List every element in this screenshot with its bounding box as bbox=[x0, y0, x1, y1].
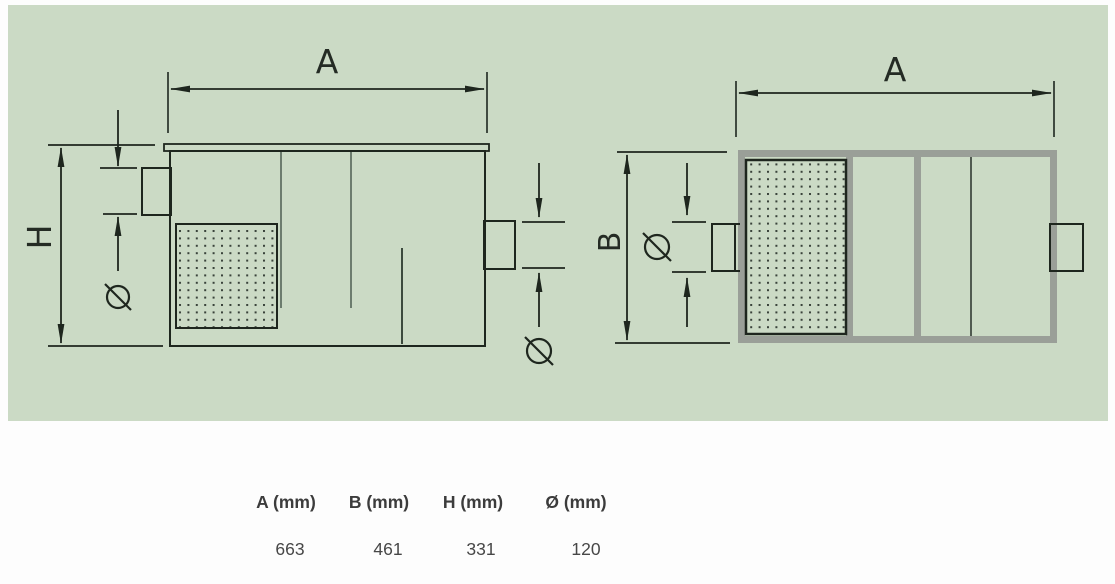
technical-drawing: A H bbox=[8, 5, 1108, 421]
diagram-panel: A H bbox=[8, 5, 1108, 421]
diameter-symbol bbox=[643, 233, 671, 261]
dim-label-h: H bbox=[20, 225, 59, 250]
inlet-port bbox=[142, 168, 171, 215]
table-header-h: H (mm) bbox=[418, 491, 528, 513]
top-view-dim-a: A bbox=[736, 50, 1054, 137]
top-view: A B bbox=[593, 50, 1083, 343]
divider-gray bbox=[914, 157, 921, 336]
top-view-dim-b: B bbox=[593, 152, 730, 343]
perforated-basket bbox=[746, 160, 846, 334]
outlet-port bbox=[484, 221, 515, 269]
dim-label-a: A bbox=[316, 42, 339, 81]
side-view-outlet-diameter-dim bbox=[522, 163, 565, 365]
side-view: A H bbox=[20, 42, 565, 365]
table-header-diameter: Ø (mm) bbox=[521, 491, 631, 513]
diameter-symbol bbox=[105, 284, 131, 310]
diameter-symbol bbox=[525, 337, 553, 365]
tank-lid bbox=[164, 144, 489, 151]
table-value-diameter: 120 bbox=[531, 538, 641, 560]
table-value-a: 663 bbox=[235, 538, 345, 560]
table-value-h: 331 bbox=[426, 538, 536, 560]
side-view-dim-a: A bbox=[168, 42, 487, 133]
dim-label-b: B bbox=[593, 232, 628, 253]
top-view-inlet-diameter-dim bbox=[643, 163, 706, 327]
side-view-inlet-diameter-dim bbox=[100, 110, 137, 310]
inlet-port bbox=[712, 224, 735, 271]
perforated-basket bbox=[176, 224, 277, 328]
dim-label-a: A bbox=[884, 50, 907, 89]
